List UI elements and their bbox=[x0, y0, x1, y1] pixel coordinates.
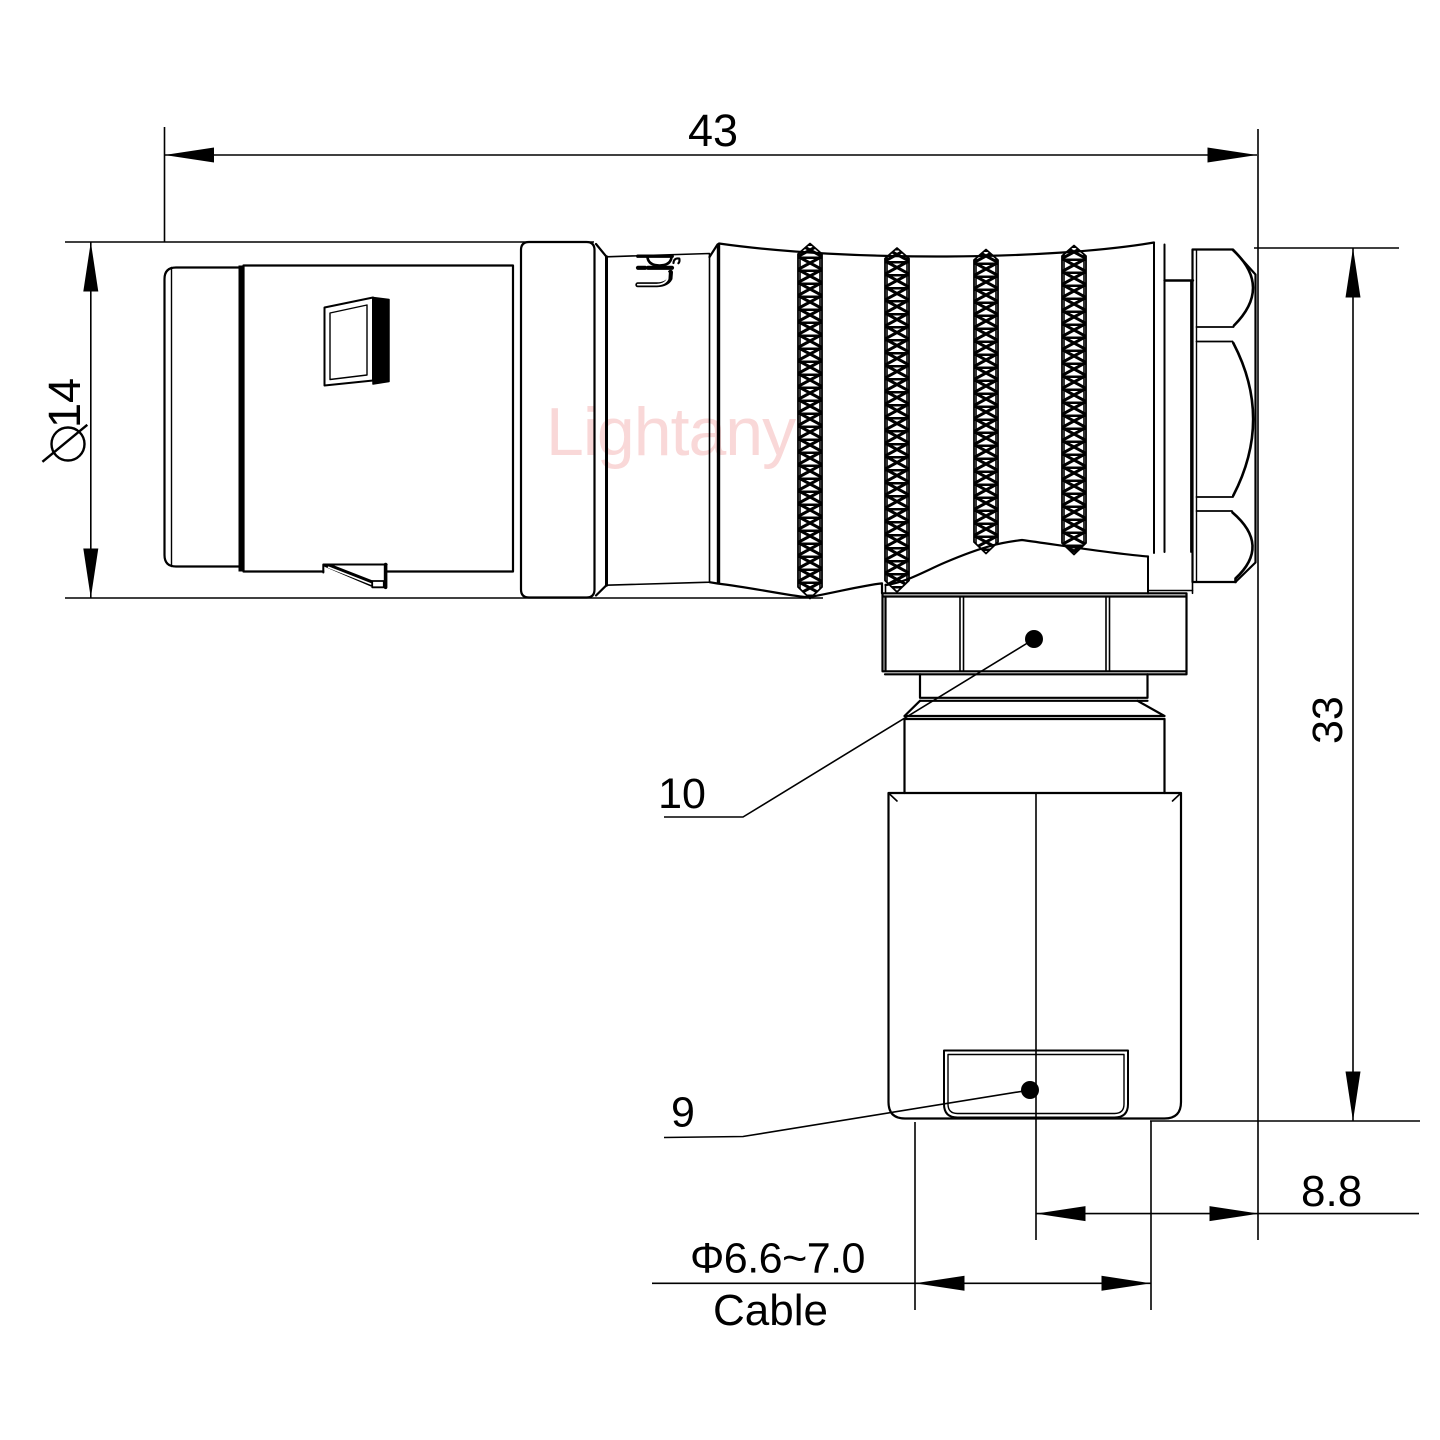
svg-text:Cable: Cable bbox=[713, 1286, 828, 1335]
svg-text:Lightany: Lightany bbox=[546, 394, 796, 470]
svg-text:Φ6.6~7.0: Φ6.6~7.0 bbox=[690, 1235, 865, 1283]
svg-text:10: 10 bbox=[658, 770, 706, 818]
svg-text:14: 14 bbox=[39, 378, 90, 428]
svg-text:8.8: 8.8 bbox=[1301, 1167, 1362, 1216]
svg-text:43: 43 bbox=[688, 105, 738, 156]
svg-text:9: 9 bbox=[671, 1089, 695, 1137]
svg-text:33: 33 bbox=[1304, 696, 1352, 744]
